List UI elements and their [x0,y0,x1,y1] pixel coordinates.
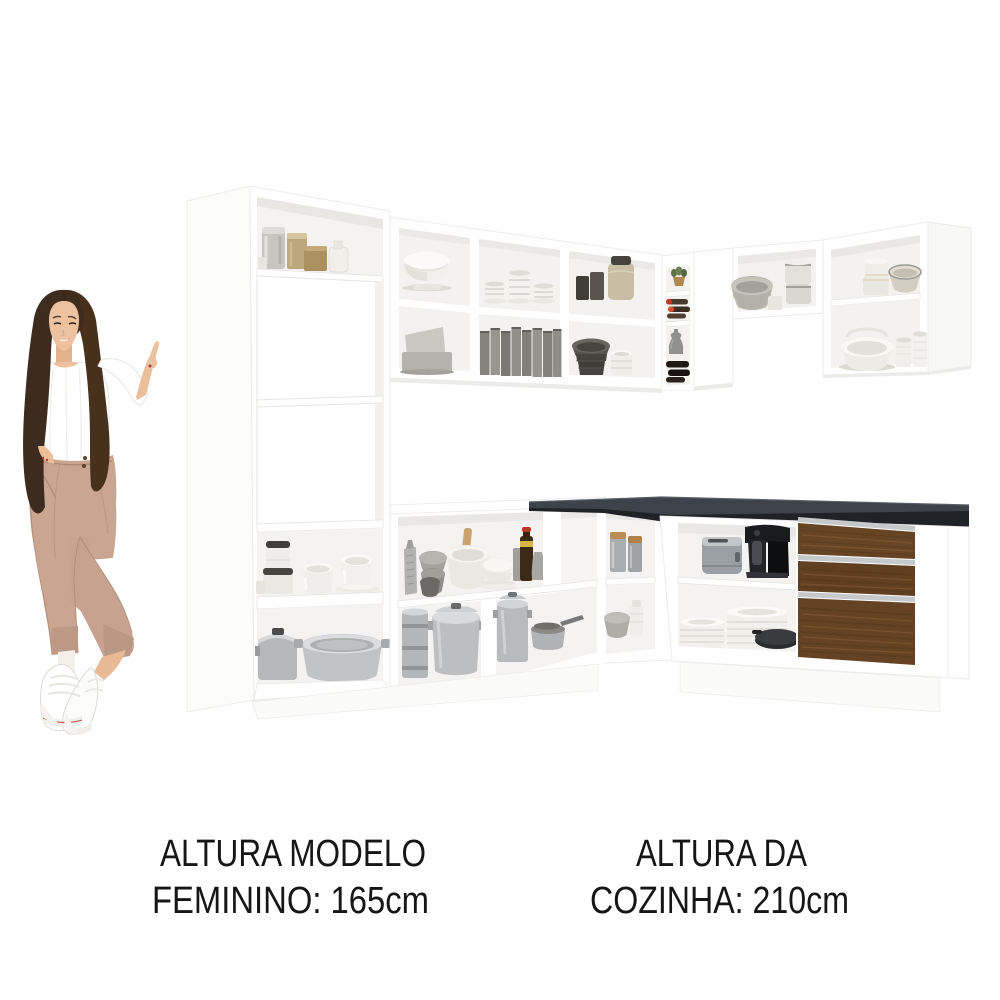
svg-text:ALTURA MODELO: ALTURA MODELO [160,833,426,875]
svg-text:COZINHA: 210cm: COZINHA: 210cm [590,880,849,922]
svg-text:ALTURA DA: ALTURA DA [636,833,808,875]
svg-text:FEMININO: 165cm: FEMININO: 165cm [152,880,429,922]
